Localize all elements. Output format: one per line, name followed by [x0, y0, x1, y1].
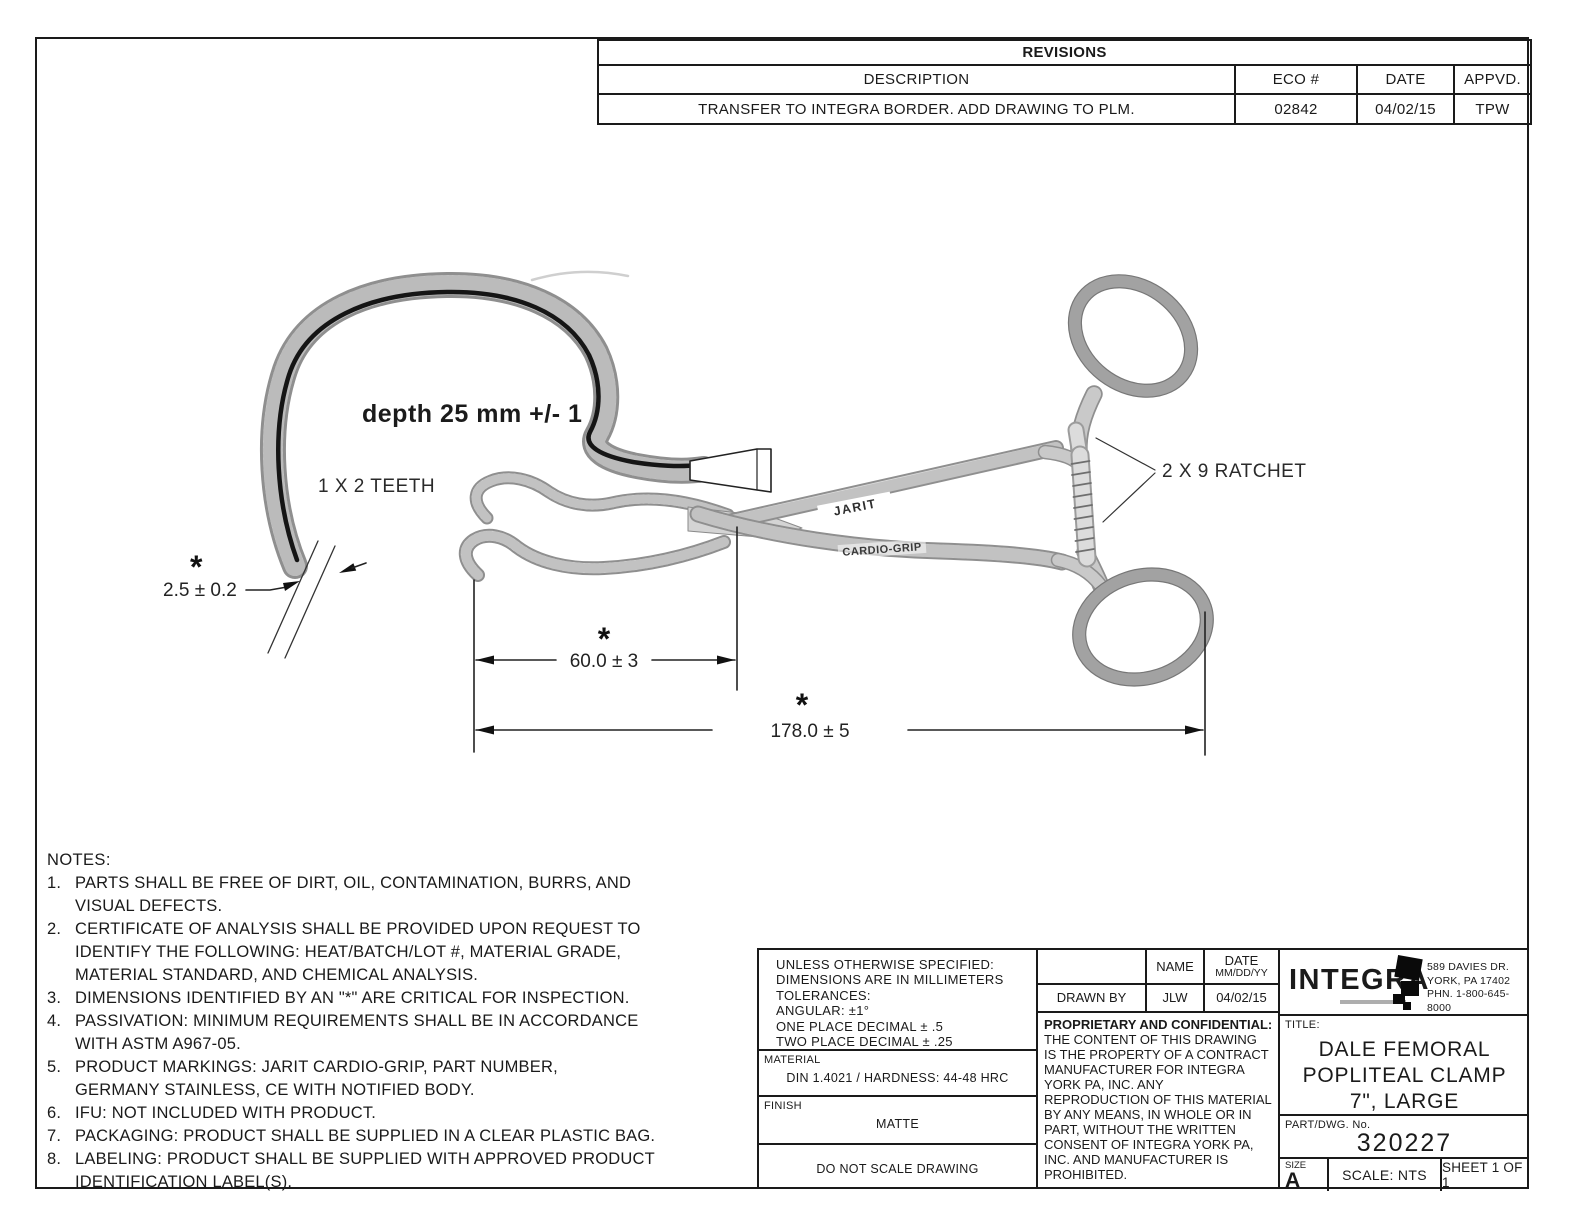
approval-blank-cell: [1038, 950, 1145, 983]
material-value: DIN 1.4021 / HARDNESS: 44-48 HRC: [759, 1071, 1036, 1085]
ratchet-label: 2 X 9 RATCHET: [1162, 461, 1306, 482]
date-format-text: MM/DD/YY: [1215, 967, 1268, 979]
dim-overall-arrow-left: [476, 726, 494, 735]
depth-label: depth 25 mm +/- 1: [362, 400, 582, 428]
dim-jaw-text: 60.0 ± 3: [570, 651, 639, 672]
dim-overall-text: 178.0 ± 5: [770, 721, 849, 742]
title-line: POPLITEAL CLAMP: [1280, 1063, 1529, 1089]
tolerance-line: ONE PLACE DECIMAL ± .5: [776, 1019, 1036, 1034]
size-value: A: [1285, 1171, 1300, 1190]
note-text: PARTS SHALL BE FREE OF DIRT, OIL, CONTAM…: [75, 872, 687, 918]
note-item: 5.PRODUCT MARKINGS: JARIT CARDIO-GRIP, P…: [47, 1056, 695, 1102]
note-item: 4.PASSIVATION: MINIMUM REQUIREMENTS SHAL…: [47, 1010, 695, 1056]
proprietary-body: THE CONTENT OF THIS DRAWING IS THE PROPE…: [1044, 1032, 1272, 1182]
jaw-tip-profile: [690, 449, 771, 492]
tolerance-box: UNLESS OTHERWISE SPECIFIED: DIMENSIONS A…: [759, 950, 1036, 1049]
finish-value: MATTE: [759, 1117, 1036, 1131]
logo-square-icon: [1403, 1002, 1411, 1010]
drawing-title: DALE FEMORAL POPLITEAL CLAMP 7", LARGE: [1280, 1037, 1529, 1115]
finish-box: FINISH MATTE: [759, 1095, 1036, 1143]
proprietary-heading: PROPRIETARY AND CONFIDENTIAL:: [1044, 1017, 1274, 1032]
note-item: 6.IFU: NOT INCLUDED WITH PRODUCT.: [47, 1102, 695, 1125]
do-not-scale-text: DO NOT SCALE DRAWING: [759, 1162, 1036, 1176]
note-number: 5.: [47, 1056, 75, 1102]
address-line: 589 DAVIES DR.: [1427, 961, 1529, 975]
note-number: 6.: [47, 1102, 75, 1125]
title-line: DALE FEMORAL: [1280, 1037, 1529, 1063]
note-number: 3.: [47, 987, 75, 1010]
dim-jaw-arrow-right: [717, 656, 735, 665]
note-text: PASSIVATION: MINIMUM REQUIREMENTS SHALL …: [75, 1010, 687, 1056]
title-block-middle-column: NAME DATE MM/DD/YY DRAWN BY JLW 04/02/15…: [1038, 948, 1280, 1189]
tolerance-line: UNLESS OTHERWISE SPECIFIED:: [776, 957, 1036, 972]
asterisk-overall: *: [796, 687, 809, 723]
part-number-box: PART/DWG. No. 320227: [1280, 1114, 1529, 1157]
part-number: 320227: [1280, 1129, 1529, 1158]
note-number: 7.: [47, 1125, 75, 1148]
engineering-drawing-sheet: REVISIONS DESCRIPTION ECO # DATE APPVD. …: [0, 0, 1584, 1224]
date-header: DATE MM/DD/YY: [1203, 950, 1278, 983]
note-text: PACKAGING: PRODUCT SHALL BE SUPPLIED IN …: [75, 1125, 687, 1148]
note-item: 8.LABELING: PRODUCT SHALL BE SUPPLIED WI…: [47, 1148, 695, 1194]
title-line: 7", LARGE: [1280, 1089, 1529, 1115]
note-text: CERTIFICATE OF ANALYSIS SHALL BE PROVIDE…: [75, 918, 687, 987]
drawn-by-date: 04/02/15: [1203, 985, 1278, 1011]
tolerance-line: ANGULAR: ±1°: [776, 1003, 1036, 1018]
note-number: 4.: [47, 1010, 75, 1056]
upper-shank-texture: [728, 448, 1056, 522]
notes-heading: NOTES:: [47, 851, 695, 870]
note-item: 7.PACKAGING: PRODUCT SHALL BE SUPPLIED I…: [47, 1125, 695, 1148]
title-label: TITLE:: [1285, 1019, 1320, 1031]
teeth-label: 1 X 2 TEETH: [318, 476, 435, 497]
logo-square-icon: [1394, 955, 1422, 981]
material-label: MATERIAL: [764, 1054, 821, 1066]
note-item: 1.PARTS SHALL BE FREE OF DIRT, OIL, CONT…: [47, 872, 695, 918]
dim-overall-arrow-right: [1185, 726, 1203, 735]
ratchet-leader-lines: [1096, 438, 1155, 522]
drawn-by-name: JLW: [1145, 985, 1203, 1011]
note-item: 2.CERTIFICATE OF ANALYSIS SHALL BE PROVI…: [47, 918, 695, 987]
lower-prong-texture: [466, 536, 724, 575]
address-line: PHN. 1-800-645-8000: [1427, 988, 1529, 1015]
tolerance-line: TWO PLACE DECIMAL ± .25: [776, 1034, 1036, 1049]
dim-tip-text: 2.5 ± 0.2: [163, 580, 237, 601]
dim-tip-leader: [246, 587, 287, 590]
note-number: 1.: [47, 872, 75, 918]
note-number: 8.: [47, 1148, 75, 1194]
drawn-by-label: DRAWN BY: [1038, 985, 1145, 1011]
drawn-by-row: DRAWN BY JLW 04/02/15: [1038, 983, 1278, 1011]
finish-label: FINISH: [764, 1100, 802, 1112]
note-text: LABELING: PRODUCT SHALL BE SUPPLIED WITH…: [75, 1148, 687, 1194]
scale-cell: SCALE: NTS: [1327, 1159, 1440, 1191]
sheet-cell: SHEET 1 OF 1: [1440, 1159, 1529, 1191]
do-not-scale-box: DO NOT SCALE DRAWING: [759, 1143, 1036, 1191]
name-header: NAME: [1145, 950, 1203, 983]
company-logo-box: INTEGRA 589 DAVIES DR. YORK, PA 17402 PH…: [1280, 950, 1529, 1014]
top-finger-ring: [1044, 249, 1222, 422]
title-box: TITLE: DALE FEMORAL POPLITEAL CLAMP 7", …: [1280, 1014, 1529, 1114]
material-box: MATERIAL DIN 1.4021 / HARDNESS: 44-48 HR…: [759, 1049, 1036, 1095]
proprietary-box: PROPRIETARY AND CONFIDENTIAL: THE CONTEN…: [1038, 1011, 1278, 1193]
size-cell: SIZE A: [1280, 1159, 1327, 1191]
note-item: 3.DIMENSIONS IDENTIFIED BY AN "*" ARE CR…: [47, 987, 695, 1010]
faint-arc: [532, 272, 628, 280]
title-block-right-column: INTEGRA 589 DAVIES DR. YORK, PA 17402 PH…: [1280, 948, 1529, 1189]
title-block-left-column: UNLESS OTHERWISE SPECIFIED: DIMENSIONS A…: [757, 948, 1038, 1189]
tolerance-line: DIMENSIONS ARE IN MILLIMETERS: [776, 972, 1036, 987]
address-line: YORK, PA 17402: [1427, 975, 1529, 989]
part-label: PART/DWG. No.: [1285, 1119, 1370, 1131]
note-text: PRODUCT MARKINGS: JARIT CARDIO-GRIP, PAR…: [75, 1056, 687, 1102]
approval-header-row: NAME DATE MM/DD/YY: [1038, 950, 1278, 983]
date-header-text: DATE: [1225, 955, 1259, 967]
note-text: DIMENSIONS IDENTIFIED BY AN "*" ARE CRIT…: [75, 987, 687, 1010]
top-ring-texture: [1053, 259, 1213, 414]
company-address: 589 DAVIES DR. YORK, PA 17402 PHN. 1-800…: [1427, 961, 1529, 1015]
notes-section: NOTES: 1.PARTS SHALL BE FREE OF DIRT, OI…: [47, 851, 695, 1194]
note-text: IFU: NOT INCLUDED WITH PRODUCT.: [75, 1102, 687, 1125]
tolerance-line: TOLERANCES:: [776, 988, 1036, 1003]
dim-jaw-arrow-left: [476, 656, 494, 665]
size-scale-sheet-row: SIZE A SCALE: NTS SHEET 1 OF 1: [1280, 1157, 1529, 1191]
note-number: 2.: [47, 918, 75, 987]
